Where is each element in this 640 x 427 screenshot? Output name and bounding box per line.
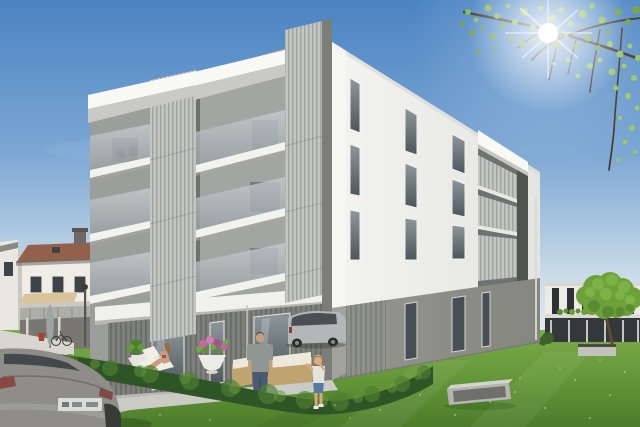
glass-window xyxy=(210,321,224,386)
boy-shadow xyxy=(311,410,325,414)
scene-svg xyxy=(0,0,640,427)
lamp-pole xyxy=(84,288,86,346)
toy-cart xyxy=(38,333,45,341)
hubcap xyxy=(331,340,335,344)
boy-head xyxy=(314,357,322,365)
shoe xyxy=(319,404,324,407)
license-plate xyxy=(58,398,102,411)
planter-base xyxy=(206,370,218,374)
window xyxy=(405,218,417,260)
window xyxy=(405,163,417,208)
man-head xyxy=(256,334,264,342)
rendering-canvas xyxy=(0,0,640,427)
window xyxy=(452,179,465,217)
window xyxy=(452,225,465,259)
far-left-window xyxy=(4,262,13,276)
window xyxy=(52,276,64,293)
parked-minivan xyxy=(286,311,346,349)
loggia-deep-shadow xyxy=(517,170,528,281)
window xyxy=(350,78,360,133)
bg-planter xyxy=(578,344,616,356)
lamp-head xyxy=(82,284,88,290)
window xyxy=(405,108,417,155)
window xyxy=(452,296,465,352)
chimney xyxy=(74,230,86,245)
window xyxy=(350,210,360,260)
hubcap xyxy=(295,341,299,345)
man-arm xyxy=(248,360,252,371)
loggia-slat-front xyxy=(478,235,517,281)
roof-window xyxy=(52,247,60,253)
chimney-cap xyxy=(72,228,88,232)
window xyxy=(30,276,42,293)
swimsuit xyxy=(162,355,166,358)
window xyxy=(405,302,417,360)
shoe xyxy=(314,406,319,409)
window xyxy=(350,144,360,196)
bg-carport-band xyxy=(545,318,640,342)
corner-highlight xyxy=(332,42,346,308)
man-shirt xyxy=(249,344,271,372)
man-arm xyxy=(269,360,273,369)
van-taillight xyxy=(289,327,292,333)
window xyxy=(482,292,490,347)
far-left-building xyxy=(0,240,18,330)
slat-screen xyxy=(285,21,322,303)
slat-screen xyxy=(150,70,196,342)
